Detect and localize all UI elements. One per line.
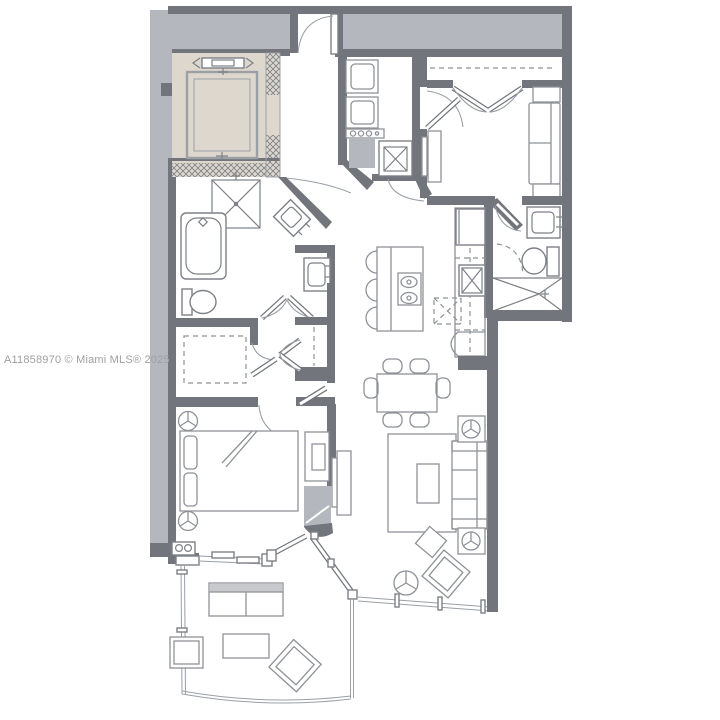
- mls-watermark: A11858970 © Miami MLS® 2025: [4, 354, 170, 366]
- kitchen-south-stub: [458, 356, 492, 370]
- den-closet-stub-left: [427, 80, 453, 88]
- outdoor-lounge-chair: [269, 640, 321, 692]
- washer: [346, 60, 378, 93]
- water-heater: [349, 139, 375, 168]
- master-bedroom: [168, 404, 336, 566]
- wall-notch: [161, 83, 172, 96]
- vestibule-stub: [250, 318, 258, 345]
- entry-door-swing: [298, 16, 333, 53]
- hatched-wall-bottom: [172, 163, 280, 177]
- master-vanity-2: [304, 258, 331, 291]
- nightstand: [179, 512, 198, 531]
- structural-column: [304, 486, 333, 537]
- living-tv-console: [332, 451, 351, 515]
- utility-counter: [346, 129, 384, 138]
- corridor-south-wall-right: [335, 49, 572, 57]
- dryer: [346, 97, 378, 128]
- entry-door: [331, 14, 338, 54]
- elevator-cab: [187, 72, 257, 158]
- shower-door-swing: [497, 244, 523, 274]
- laundry-utility-closet: [346, 60, 412, 176]
- closet-door-swing: [252, 343, 275, 360]
- kitchen-island: [377, 247, 423, 331]
- bath2-toilet: [522, 247, 559, 276]
- dining-table: [377, 374, 437, 412]
- bedroom-tv-cabinet: [305, 432, 329, 481]
- hatched-wall-upper: [266, 53, 280, 95]
- corridor-right: [343, 13, 562, 53]
- master-bath-doors: [262, 297, 312, 318]
- dining-area: [364, 359, 450, 427]
- air-handler: [379, 141, 412, 176]
- den-second-bedroom: [420, 57, 572, 205]
- den-west-wall-upper: [420, 57, 427, 87]
- balcony-swing-door: [267, 536, 306, 561]
- bedroom-north-wall-left: [172, 397, 258, 407]
- master-toilet: [182, 289, 216, 315]
- private-elevator: [172, 53, 280, 177]
- outdoor-sofa: [209, 583, 283, 616]
- side-table: [458, 416, 485, 442]
- east-wall-lower: [487, 318, 498, 610]
- bistro-table: [394, 571, 418, 595]
- utility-meter-box: [172, 542, 199, 565]
- den-tv-console: [422, 131, 441, 182]
- bedroom-sliding-glass-door: [199, 552, 272, 566]
- refrigerator: [456, 209, 485, 245]
- den-closet-double-doors: [453, 88, 522, 112]
- utility-east-wall: [412, 53, 420, 180]
- dishwasher: [434, 298, 461, 324]
- sofa: [452, 441, 487, 529]
- linen-south-wall: [295, 367, 335, 381]
- den-door: [427, 99, 459, 128]
- bed: [180, 431, 298, 511]
- outdoor-chair: [170, 637, 203, 668]
- north-wall: [168, 6, 572, 14]
- outdoor-coffee-table: [223, 634, 269, 658]
- window-wall: [358, 594, 498, 613]
- bath-south-wall: [172, 318, 258, 327]
- nightstand: [179, 412, 198, 431]
- corridor-left: [172, 13, 290, 53]
- wardrobe: [184, 336, 246, 383]
- lounge-chair: [422, 550, 470, 598]
- walk-in-closet: [184, 336, 276, 383]
- living-sliding-glass-door: [311, 532, 357, 599]
- cooktop: [398, 273, 421, 305]
- side-table: [458, 528, 485, 554]
- den-daybed-sofa: [529, 87, 560, 197]
- linen-bifold-doors: [280, 340, 300, 370]
- floor-plan-page: A11858970 © Miami MLS® 2025: [0, 0, 720, 720]
- den-south-wall-right: [522, 196, 572, 205]
- living-room: [311, 416, 498, 613]
- balcony-terrace: [170, 566, 354, 703]
- entry-jamb-left: [290, 13, 298, 53]
- bath2-vanity-sink: [527, 207, 563, 238]
- bathtub: [181, 213, 226, 279]
- bath2-south-wall: [488, 310, 572, 321]
- linen-north-wall: [295, 317, 335, 325]
- kitchen-sink: [459, 265, 485, 296]
- bar-stools: [366, 251, 377, 329]
- coffee-table: [417, 464, 439, 503]
- counter-curved-end: [451, 332, 485, 356]
- bathroom-2: [484, 198, 572, 321]
